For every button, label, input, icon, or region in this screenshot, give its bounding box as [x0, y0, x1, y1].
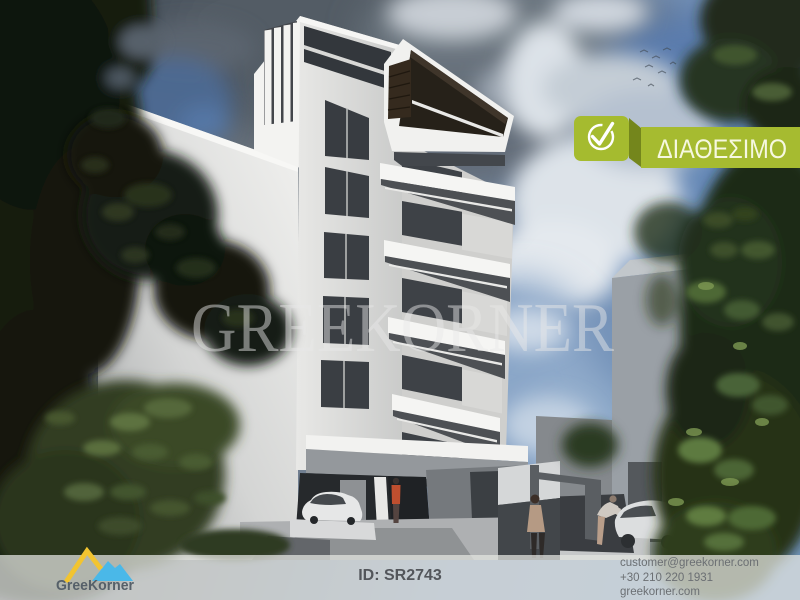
svg-text:customer@greekorner.com: customer@greekorner.com	[620, 557, 759, 569]
svg-text:GreeKorner: GreeKorner	[56, 577, 134, 594]
svg-text:ID: SR2743: ID: SR2743	[358, 567, 442, 584]
svg-text:greekorner.com: greekorner.com	[620, 586, 700, 598]
svg-text:ΔΙΑΘΕΣΙΜΟ: ΔΙΑΘΕΣΙΜΟ	[657, 134, 787, 164]
svg-text:+30 210 220 1931: +30 210 220 1931	[620, 572, 713, 584]
svg-text:GREEKORNER: GREEKORNER	[191, 290, 614, 367]
